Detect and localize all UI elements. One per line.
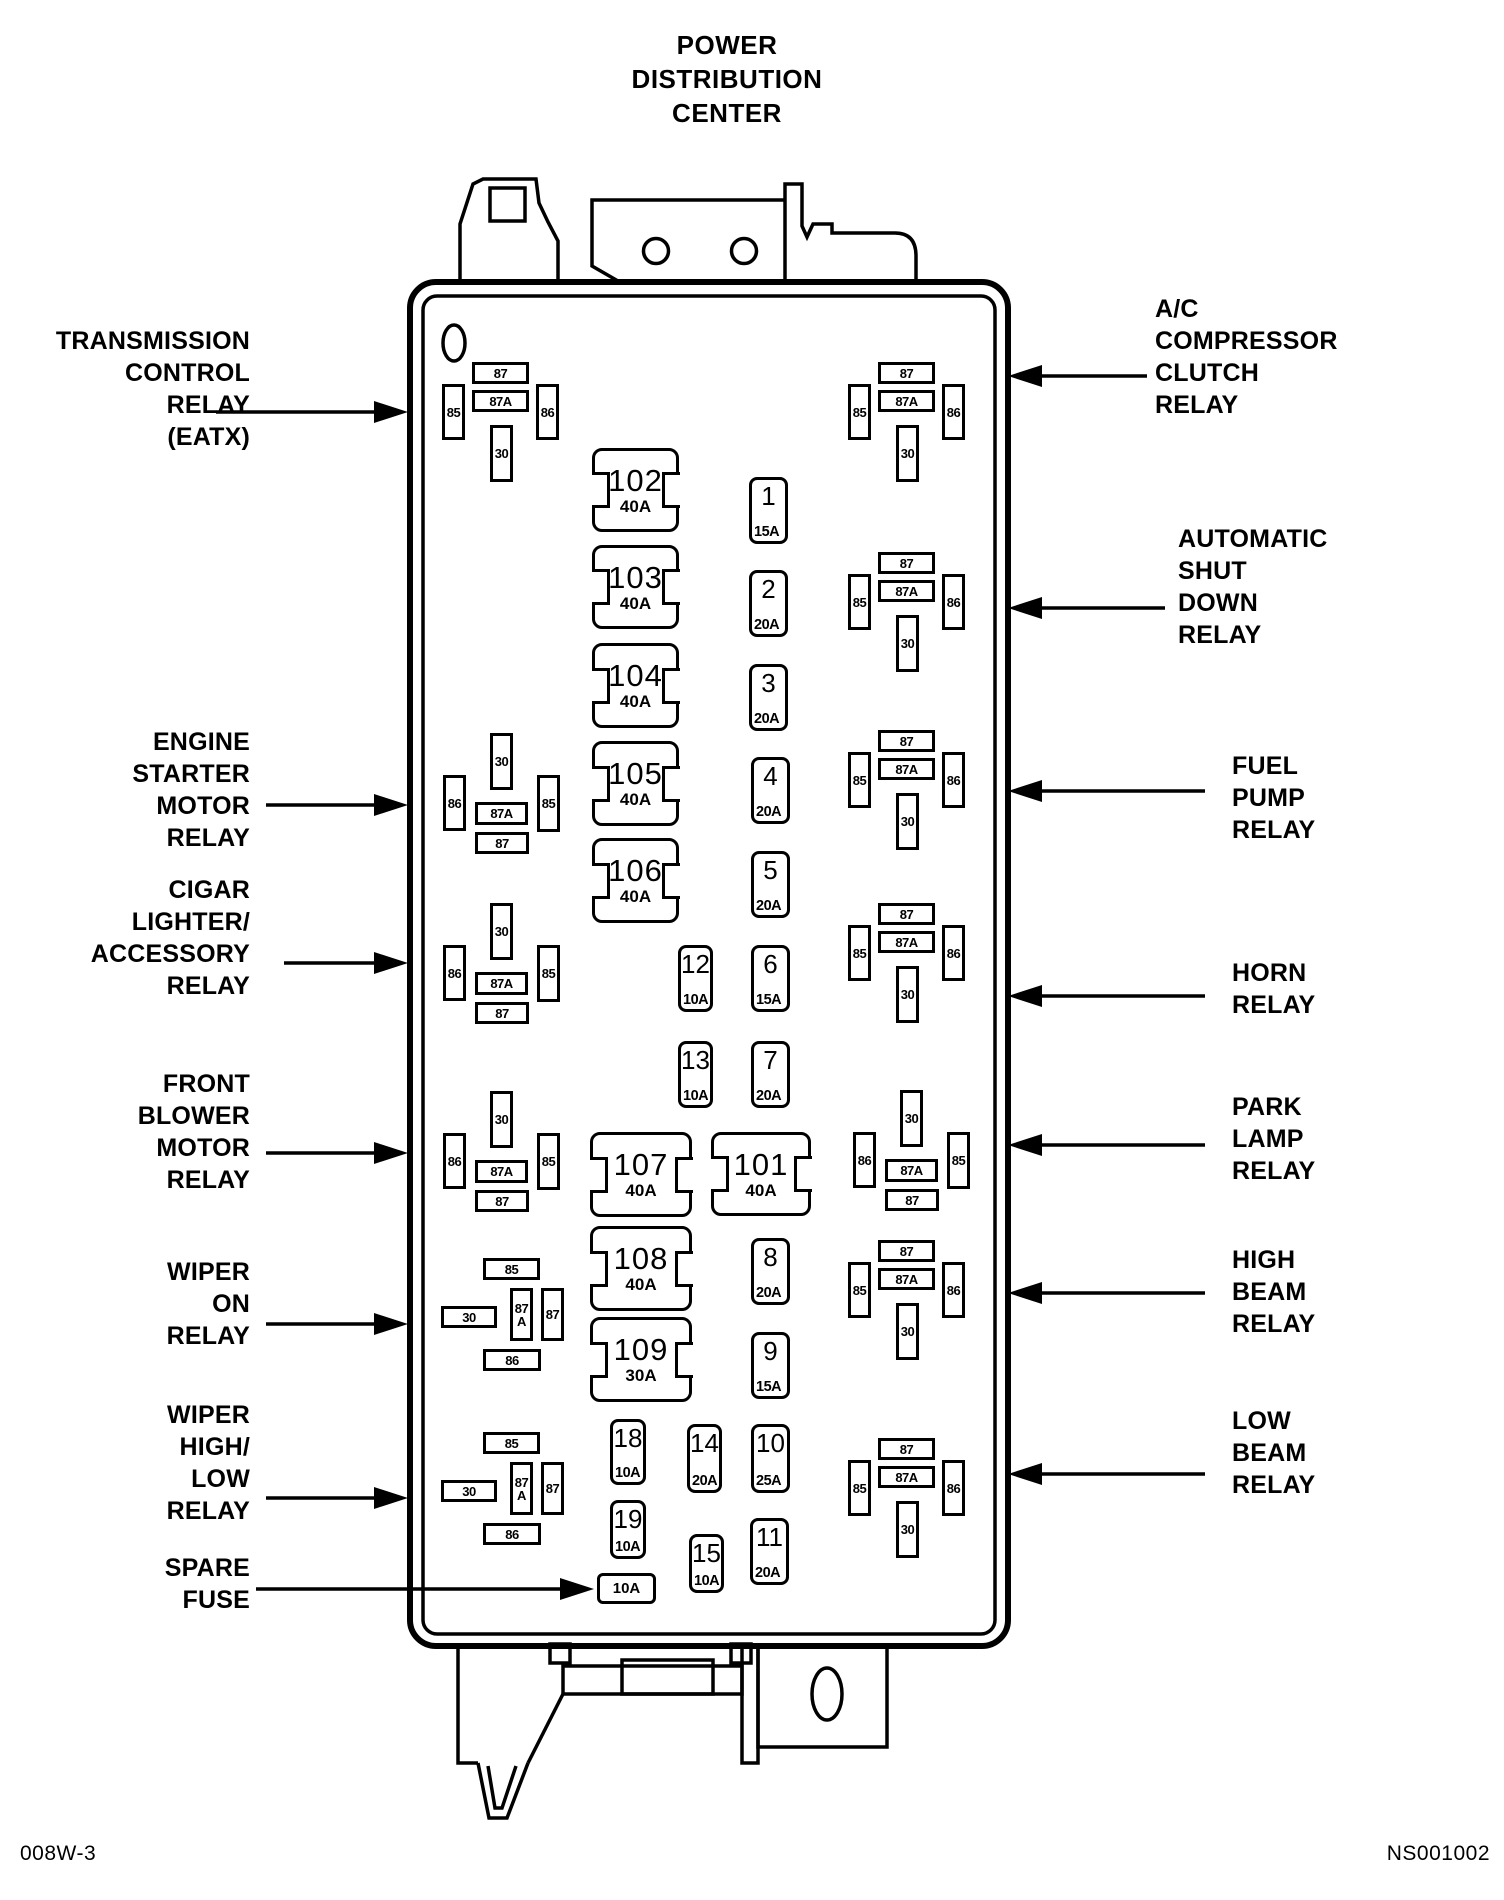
fuse-notch xyxy=(675,1157,693,1193)
label-line: LAMP xyxy=(1232,1123,1315,1155)
cigar-lighter-accessory-relay-socket-pin-86: 86 xyxy=(443,945,466,1001)
high-beam-relay-socket-pin-86: 86 xyxy=(942,1262,965,1318)
fuse-number: 15 xyxy=(692,1539,721,1567)
high-beam-relay-socket-pin-85: 85 xyxy=(848,1262,871,1318)
fuse-number: 106 xyxy=(608,854,663,887)
label-line: FRONT xyxy=(138,1068,250,1100)
fuse-notch xyxy=(662,668,680,704)
fuse-number: 103 xyxy=(608,561,663,594)
arrow-automatic-shut-down-relay xyxy=(1008,597,1165,619)
label-line: LOW xyxy=(1232,1405,1315,1437)
fuse-cavity-13: 1310A xyxy=(678,1041,713,1108)
park-lamp-relay-socket-pin-30: 30 xyxy=(900,1090,923,1147)
fuse-amp-rating: 20A xyxy=(756,1285,781,1301)
fuel-pump-relay-socket-pin-30: 30 xyxy=(896,793,919,850)
fuse-notch xyxy=(592,668,610,704)
wiper-high-low-relay-socket-pin-30: 30 xyxy=(441,1480,497,1502)
label-line: BEAM xyxy=(1232,1276,1315,1308)
fuse-number: 4 xyxy=(754,762,787,790)
fuse-amp-rating: 20A xyxy=(755,1565,780,1581)
wiper-high-low-relay-socket-pin-87A: 87A xyxy=(510,1462,533,1515)
fuse-amp-rating: 10A xyxy=(683,1088,708,1104)
label-line: WIPER xyxy=(167,1399,250,1431)
fuse-cavity-5: 520A xyxy=(751,851,790,918)
fuse-number: 8 xyxy=(754,1243,787,1271)
low-beam-relay-socket-pin-87: 87 xyxy=(878,1438,935,1460)
transmission-control-relay-socket-pin-85: 85 xyxy=(442,384,465,440)
label-line: RELAY xyxy=(56,389,250,421)
fuse-cavity-1: 115A xyxy=(749,477,788,544)
title-line: CENTER xyxy=(527,96,927,130)
fuse-amp-rating: 20A xyxy=(756,898,781,914)
label-line: A/C xyxy=(1155,293,1338,325)
fuse-amp-rating: 30A xyxy=(625,1366,656,1386)
ac-compressor-clutch-relay-socket-pin-86: 86 xyxy=(942,384,965,440)
fuse-number: 107 xyxy=(614,1148,669,1181)
fuse-amp-rating: 40A xyxy=(745,1181,776,1201)
fuse-notch xyxy=(662,766,680,802)
fuse-amp-rating: 20A xyxy=(692,1473,717,1489)
fuse-notch xyxy=(794,1156,812,1192)
fuse-number: 104 xyxy=(608,659,663,692)
label-line: CONTROL xyxy=(56,357,250,389)
fuse-notch xyxy=(592,766,610,802)
automatic-shut-down-relay-socket-pin-30: 30 xyxy=(896,615,919,672)
arrow-low-beam-relay xyxy=(1008,1463,1205,1485)
label-line: RELAY xyxy=(1232,989,1315,1021)
fuel-pump-relay-socket-pin-87A: 87A xyxy=(878,758,935,780)
component-label-low-beam-relay: LOWBEAMRELAY xyxy=(1232,1405,1315,1501)
engine-starter-motor-relay-socket-pin-87A: 87A xyxy=(475,802,528,825)
front-blower-motor-relay-socket-pin-87A: 87A xyxy=(475,1160,528,1183)
fuse-number: 19 xyxy=(613,1505,643,1533)
fuse-cavity-8: 820A xyxy=(751,1238,790,1305)
fuse-cavity-12: 1210A xyxy=(678,945,713,1012)
label-line: SHUT xyxy=(1178,555,1327,587)
arrow-ac-compressor-clutch-relay xyxy=(1008,365,1147,387)
fuse-amp-rating: 10A xyxy=(694,1573,719,1589)
bracket-hole xyxy=(644,239,669,264)
fuse-amp-rating: 40A xyxy=(620,594,651,614)
fuse-number: 7 xyxy=(754,1046,787,1074)
fuse-cavity-14: 1420A xyxy=(687,1424,722,1493)
label-line: RELAY xyxy=(91,970,250,1002)
component-label-transmission-control-relay: TRANSMISSIONCONTROLRELAY(EATX) xyxy=(56,325,250,453)
low-beam-relay-socket-pin-86: 86 xyxy=(942,1460,965,1516)
component-label-spare-fuse: SPAREFUSE xyxy=(165,1552,250,1616)
fuse-number: 101 xyxy=(734,1148,789,1181)
low-beam-relay-socket-pin-30: 30 xyxy=(896,1501,919,1558)
mounting-hole xyxy=(443,325,465,361)
label-line: FUEL xyxy=(1232,750,1315,782)
title-line: DISTRIBUTION xyxy=(527,62,927,96)
fuse-number: 9 xyxy=(754,1337,787,1365)
fuse-cavity-11: 1120A xyxy=(750,1518,789,1585)
fuse-notch xyxy=(592,863,610,899)
fuse-number: 109 xyxy=(614,1333,669,1366)
automatic-shut-down-relay-socket-pin-85: 85 xyxy=(848,574,871,630)
transmission-control-relay-socket-pin-86: 86 xyxy=(536,384,559,440)
label-line: RELAY xyxy=(1232,1469,1315,1501)
bracket-slot xyxy=(812,1668,842,1720)
fuse-notch xyxy=(590,1251,608,1287)
fuse-cavity-19: 1910A xyxy=(610,1500,646,1559)
fuse-notch xyxy=(662,472,680,508)
fuse-amp-rating: 40A xyxy=(620,497,651,517)
label-line: BLOWER xyxy=(138,1100,250,1132)
label-line: RELAY xyxy=(167,1495,250,1527)
ac-compressor-clutch-relay-socket-pin-30: 30 xyxy=(896,425,919,482)
arrow-park-lamp-relay xyxy=(1008,1134,1205,1156)
arrow-high-beam-relay xyxy=(1008,1282,1205,1304)
park-lamp-relay-socket-pin-86: 86 xyxy=(853,1132,876,1188)
wiper-high-low-relay-socket-pin-87: 87 xyxy=(541,1462,564,1515)
fuse-number: 105 xyxy=(608,757,663,790)
label-line: ENGINE xyxy=(132,726,250,758)
fuse-cavity-15: 1510A xyxy=(689,1534,724,1593)
front-blower-motor-relay-socket-pin-30: 30 xyxy=(490,1091,513,1148)
fuse-amp-rating: 15A xyxy=(756,1379,781,1395)
bracket-hole xyxy=(732,239,757,264)
label-line: RELAY xyxy=(1178,619,1327,651)
fuse-notch xyxy=(662,569,680,605)
drawing-code-left: 008W-3 xyxy=(20,1842,96,1866)
engine-starter-motor-relay-socket-pin-30: 30 xyxy=(490,733,513,790)
label-line: DOWN xyxy=(1178,587,1327,619)
arrow-cigar-lighter-accessory-relay xyxy=(284,952,408,974)
front-blower-motor-relay-socket-pin-85: 85 xyxy=(537,1133,560,1190)
page-title: POWER DISTRIBUTION CENTER xyxy=(527,28,927,130)
fuse-cavity-105: 10540A xyxy=(592,741,679,826)
component-label-cigar-lighter-accessory-relay: CIGARLIGHTER/ACCESSORYRELAY xyxy=(91,874,250,1002)
component-label-wiper-high-low-relay: WIPERHIGH/LOWRELAY xyxy=(167,1399,250,1527)
horn-relay-socket-pin-87: 87 xyxy=(878,903,935,925)
label-line: HORN xyxy=(1232,957,1315,989)
fuse-number: 11 xyxy=(753,1523,786,1551)
fuse-number: 108 xyxy=(614,1242,669,1275)
fuse-amp-rating: 40A xyxy=(620,692,651,712)
wiper-high-low-relay-socket-pin-85: 85 xyxy=(483,1432,540,1454)
label-line: MOTOR xyxy=(138,1132,250,1164)
fuse-cavity-108: 10840A xyxy=(590,1226,692,1311)
fuse-number: 102 xyxy=(608,464,663,497)
label-line: RELAY xyxy=(1232,1155,1315,1187)
fuse-cavity-101: 10140A xyxy=(711,1132,811,1216)
automatic-shut-down-relay-socket-pin-87A: 87A xyxy=(878,580,935,602)
label-line: COMPRESSOR xyxy=(1155,325,1338,357)
fuse-cavity-10: 1025A xyxy=(751,1424,790,1493)
cigar-lighter-accessory-relay-socket-pin-85: 85 xyxy=(537,945,560,1002)
label-line: AUTOMATIC xyxy=(1178,523,1327,555)
fuse-cavity-102: 10240A xyxy=(592,448,679,532)
label-line: CIGAR xyxy=(91,874,250,906)
horn-relay-socket-pin-87A: 87A xyxy=(878,931,935,953)
component-label-high-beam-relay: HIGHBEAMRELAY xyxy=(1232,1244,1315,1340)
label-line: CLUTCH xyxy=(1155,357,1338,389)
cigar-lighter-accessory-relay-socket-pin-30: 30 xyxy=(490,903,513,960)
fuse-amp-rating: 40A xyxy=(620,887,651,907)
engine-starter-motor-relay-socket-pin-87: 87 xyxy=(475,832,529,854)
high-beam-relay-socket-pin-87: 87 xyxy=(878,1240,935,1262)
cigar-lighter-accessory-relay-socket-pin-87: 87 xyxy=(475,1002,529,1024)
park-lamp-relay-socket-pin-87: 87 xyxy=(885,1189,939,1211)
fuse-notch xyxy=(675,1342,693,1378)
ac-compressor-clutch-relay-socket-pin-87A: 87A xyxy=(878,390,935,412)
fuse-cavity-6: 615A xyxy=(751,945,790,1012)
label-line: HIGH/ xyxy=(167,1431,250,1463)
fuel-pump-relay-socket-pin-86: 86 xyxy=(942,752,965,808)
transmission-control-relay-socket-pin-87A: 87A xyxy=(472,390,529,412)
label-line: WIPER xyxy=(167,1256,250,1288)
label-line: ON xyxy=(167,1288,250,1320)
automatic-shut-down-relay-socket-pin-87: 87 xyxy=(878,552,935,574)
front-blower-motor-relay-socket-pin-86: 86 xyxy=(443,1133,466,1189)
fuse-number: 2 xyxy=(752,575,785,603)
label-line: STARTER xyxy=(132,758,250,790)
cigar-lighter-accessory-relay-socket-pin-87A: 87A xyxy=(475,972,528,995)
label-line: ACCESSORY xyxy=(91,938,250,970)
component-label-engine-starter-motor-relay: ENGINESTARTERMOTORRELAY xyxy=(132,726,250,854)
title-line: POWER xyxy=(527,28,927,62)
component-label-park-lamp-relay: PARKLAMPRELAY xyxy=(1232,1091,1315,1187)
engine-starter-motor-relay-socket-pin-85: 85 xyxy=(537,775,560,832)
component-label-wiper-on-relay: WIPERONRELAY xyxy=(167,1256,250,1352)
fuse-amp-rating: 20A xyxy=(756,1088,781,1104)
label-line: LIGHTER/ xyxy=(91,906,250,938)
label-line: PARK xyxy=(1232,1091,1315,1123)
high-beam-relay-socket-pin-87A: 87A xyxy=(878,1268,935,1290)
fuse-amp-rating: 20A xyxy=(756,804,781,820)
wiper-on-relay-socket-pin-85: 85 xyxy=(483,1258,540,1280)
arrow-front-blower-motor-relay xyxy=(266,1142,408,1164)
fuse-amp-rating: 10A xyxy=(615,1465,640,1481)
arrow-wiper-high-low-relay xyxy=(266,1487,408,1509)
high-beam-relay-socket-pin-30: 30 xyxy=(896,1303,919,1360)
component-label-fuel-pump-relay: FUELPUMPRELAY xyxy=(1232,750,1315,846)
park-lamp-relay-socket-pin-87A: 87A xyxy=(885,1159,938,1182)
arrow-engine-starter-motor-relay xyxy=(266,794,408,816)
fuse-amp-rating: 20A xyxy=(754,711,779,727)
label-line: BEAM xyxy=(1232,1437,1315,1469)
fuse-amp-rating: 10A xyxy=(683,992,708,1008)
fuel-pump-relay-socket-pin-87: 87 xyxy=(878,730,935,752)
horn-relay-socket-pin-85: 85 xyxy=(848,925,871,981)
label-line: TRANSMISSION xyxy=(56,325,250,357)
arrow-horn-relay xyxy=(1008,985,1205,1007)
drawing-code-right: NS001002 xyxy=(1314,1842,1490,1866)
label-line: RELAY xyxy=(138,1164,250,1196)
fuse-cavity-9: 915A xyxy=(751,1332,790,1399)
bottom-bracket xyxy=(458,1644,887,1818)
fuel-pump-relay-socket-pin-85: 85 xyxy=(848,752,871,808)
fuse-amp-rating: 40A xyxy=(620,790,651,810)
power-distribution-center-diagram: POWER DISTRIBUTION CENTER 008W-3 NS00100… xyxy=(0,0,1504,1900)
low-beam-relay-socket-pin-87A: 87A xyxy=(878,1466,935,1488)
fuse-amp-rating: 40A xyxy=(625,1181,656,1201)
fuse-notch xyxy=(675,1251,693,1287)
fuse-number: 12 xyxy=(681,950,710,978)
transmission-control-relay-socket-pin-87: 87 xyxy=(472,362,529,384)
component-label-front-blower-motor-relay: FRONTBLOWERMOTORRELAY xyxy=(138,1068,250,1196)
fuse-cavity-7: 720A xyxy=(751,1041,790,1108)
horn-relay-socket-pin-30: 30 xyxy=(896,966,919,1023)
fuse-number: 10 xyxy=(754,1429,787,1457)
label-line: RELAY xyxy=(1232,1308,1315,1340)
component-label-horn-relay: HORNRELAY xyxy=(1232,957,1315,1021)
fuse-number: 5 xyxy=(754,856,787,884)
fuse-notch xyxy=(592,569,610,605)
fuse-cavity-3: 320A xyxy=(749,664,788,731)
label-line: (EATX) xyxy=(56,421,250,453)
fuse-amp-rating: 40A xyxy=(625,1275,656,1295)
fuse-amp-rating: 20A xyxy=(754,617,779,633)
fuse-cavity-107: 10740A xyxy=(590,1132,692,1217)
label-line: RELAY xyxy=(1155,389,1338,421)
label-line: FUSE xyxy=(165,1584,250,1616)
arrow-fuel-pump-relay xyxy=(1008,780,1205,802)
ac-compressor-clutch-relay-socket-pin-85: 85 xyxy=(848,384,871,440)
spare-fuse-cavity: 10A xyxy=(597,1573,656,1604)
fuse-cavity-2: 220A xyxy=(749,570,788,637)
fuse-amp-rating: 15A xyxy=(756,992,781,1008)
label-line: RELAY xyxy=(167,1320,250,1352)
label-line: MOTOR xyxy=(132,790,250,822)
label-line: SPARE xyxy=(165,1552,250,1584)
wiper-on-relay-socket-pin-30: 30 xyxy=(441,1306,497,1328)
fuse-cavity-103: 10340A xyxy=(592,545,679,629)
wiper-on-relay-socket-pin-86: 86 xyxy=(483,1349,541,1371)
fuse-notch xyxy=(590,1342,608,1378)
fuse-amp-rating: 10A xyxy=(615,1539,640,1555)
fuse-number: 13 xyxy=(681,1046,710,1074)
automatic-shut-down-relay-socket-pin-86: 86 xyxy=(942,574,965,630)
front-blower-motor-relay-socket-pin-87: 87 xyxy=(475,1190,529,1212)
wiper-on-relay-socket-pin-87A: 87A xyxy=(510,1288,533,1341)
ac-compressor-clutch-relay-socket-pin-87: 87 xyxy=(878,362,935,384)
wiper-high-low-relay-socket-pin-86: 86 xyxy=(483,1523,541,1545)
fuse-notch xyxy=(590,1157,608,1193)
fuse-number: 3 xyxy=(752,669,785,697)
fuse-amp-rating: 25A xyxy=(756,1473,781,1489)
component-label-automatic-shut-down-relay: AUTOMATICSHUTDOWNRELAY xyxy=(1178,523,1327,651)
label-line: LOW xyxy=(167,1463,250,1495)
transmission-control-relay-socket-pin-30: 30 xyxy=(490,425,513,482)
fuse-cavity-109: 10930A xyxy=(590,1317,692,1402)
arrow-spare-fuse xyxy=(256,1578,594,1600)
fuse-number: 6 xyxy=(754,950,787,978)
fuse-notch xyxy=(711,1156,729,1192)
fuse-number: 1 xyxy=(752,482,785,510)
fuse-cavity-104: 10440A xyxy=(592,643,679,728)
arrow-wiper-on-relay xyxy=(266,1313,408,1335)
fuse-amp-rating: 15A xyxy=(754,524,779,540)
fuse-notch xyxy=(662,863,680,899)
engine-starter-motor-relay-socket-pin-86: 86 xyxy=(443,775,466,831)
park-lamp-relay-socket-pin-85: 85 xyxy=(947,1132,970,1189)
fuse-notch xyxy=(592,472,610,508)
low-beam-relay-socket-pin-85: 85 xyxy=(848,1460,871,1516)
wiper-on-relay-socket-pin-87: 87 xyxy=(541,1288,564,1341)
fuse-number: 14 xyxy=(690,1429,719,1457)
fuse-cavity-4: 420A xyxy=(751,757,790,824)
component-label-ac-compressor-clutch-relay: A/CCOMPRESSORCLUTCHRELAY xyxy=(1155,293,1338,421)
fuse-cavity-106: 10640A xyxy=(592,838,679,923)
label-line: RELAY xyxy=(132,822,250,854)
label-line: RELAY xyxy=(1232,814,1315,846)
fuse-number: 18 xyxy=(613,1424,643,1452)
fuse-cavity-18: 1810A xyxy=(610,1419,646,1485)
label-line: HIGH xyxy=(1232,1244,1315,1276)
label-line: PUMP xyxy=(1232,782,1315,814)
top-bracket xyxy=(460,179,916,282)
horn-relay-socket-pin-86: 86 xyxy=(942,925,965,981)
